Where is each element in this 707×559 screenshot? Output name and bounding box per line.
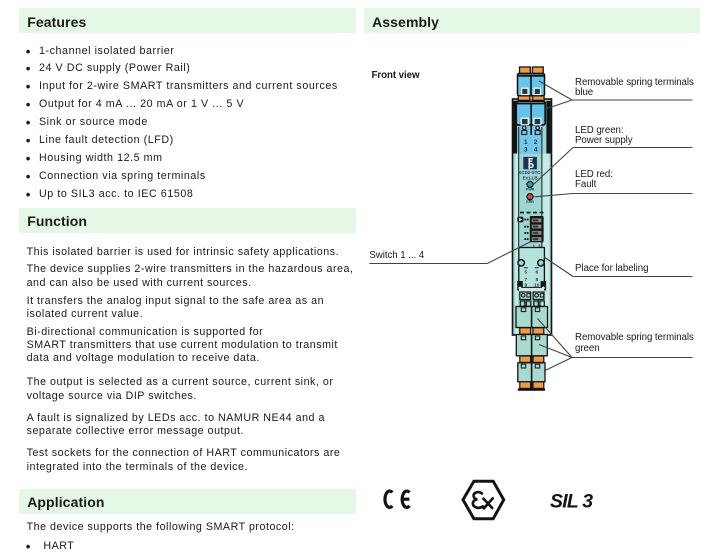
svg-text:6: 6 [535, 270, 538, 276]
svg-text:5: 5 [524, 270, 527, 276]
svg-text:10: 10 [534, 282, 540, 288]
svg-text:KCD2-STC-: KCD2-STC- [518, 170, 542, 175]
svg-text:8: 8 [535, 277, 538, 283]
svg-text:2: 2 [534, 139, 538, 146]
svg-text:7: 7 [524, 277, 527, 283]
svg-text:SIL 3: SIL 3 [550, 491, 593, 513]
svg-text:9: 9 [524, 282, 527, 288]
svg-text:PWR: PWR [526, 188, 535, 192]
svg-text:Ex1.LB: Ex1.LB [523, 175, 538, 180]
svg-text:1: 1 [524, 139, 528, 146]
svg-text:3: 3 [524, 147, 528, 154]
svg-text:4: 4 [534, 147, 538, 154]
svg-text:ERR: ERR [526, 200, 534, 204]
